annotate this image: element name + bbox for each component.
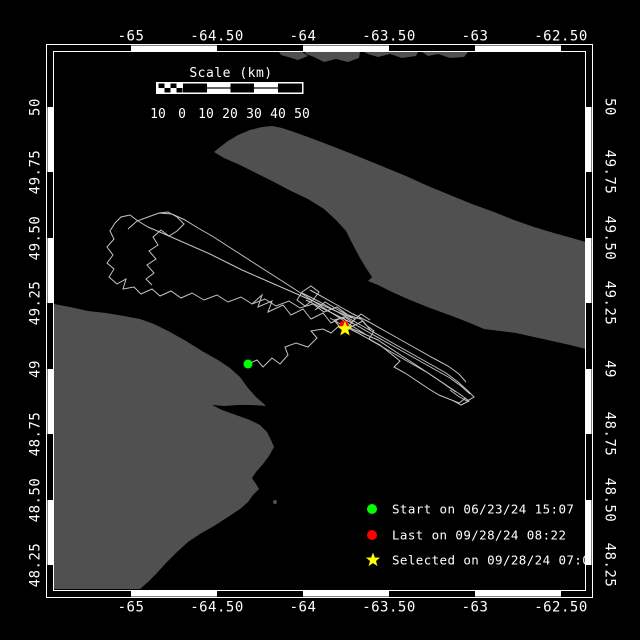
- lat-tick-label-right: 49.50: [602, 216, 618, 261]
- lat-tick-label-left: 49.50: [28, 216, 44, 261]
- frame-band-right: [586, 46, 592, 108]
- lon-tick-label-bottom: -65: [118, 600, 145, 616]
- legend-item-selected: Selected on 09/28/24 07:07: [366, 553, 598, 568]
- lat-tick-label-left: 49.25: [28, 281, 44, 326]
- map-canvas: Scale (km)1001020304050Start on 06/23/24…: [0, 0, 640, 640]
- frame-band-top: [217, 46, 303, 52]
- lat-tick-label-left: 49.75: [28, 150, 44, 195]
- scale-stripe: [207, 87, 231, 88]
- lat-tick-label-right: 48.25: [602, 543, 618, 588]
- frame-band-right: [586, 172, 592, 238]
- lon-tick-label-top: -64: [290, 29, 317, 45]
- lon-tick-label-bottom: -64.50: [190, 600, 244, 616]
- frame-band-top: [131, 46, 217, 52]
- frame-band-bottom: [303, 591, 389, 597]
- lat-tick-label-left: 48.25: [28, 543, 44, 588]
- lat-tick-label-left: 48.50: [28, 478, 44, 523]
- scale-checker-cell: [165, 88, 171, 93]
- frame-band-left: [48, 303, 54, 369]
- frame-band-right: [586, 369, 592, 434]
- scale-label: 0: [178, 107, 186, 122]
- legend-label-last: Last on 09/28/24 08:22: [392, 528, 566, 543]
- frame-band-bottom: [131, 591, 217, 597]
- scale-label: 30: [246, 107, 262, 122]
- lon-tick-label-bottom: -64: [290, 600, 317, 616]
- frame-band-top: [475, 46, 561, 52]
- frame-band-right: [586, 107, 592, 172]
- frame-band-left: [48, 172, 54, 238]
- lon-tick-label-top: -64.50: [190, 29, 244, 45]
- frame-band-left: [48, 369, 54, 434]
- frame-band-right: [586, 565, 592, 597]
- start-marker: [244, 360, 253, 369]
- lon-tick-label-top: -63: [462, 29, 489, 45]
- scale-black-segment: [231, 84, 255, 93]
- legend-item-last: Last on 09/28/24 08:22: [367, 528, 566, 543]
- lat-tick-label-right: 50: [602, 98, 618, 116]
- frame-band-right: [586, 303, 592, 369]
- lon-tick-label-bottom: -63.50: [362, 600, 416, 616]
- map-interior: Scale (km)1001020304050Start on 06/23/24…: [54, 52, 599, 591]
- scale-label: 50: [294, 107, 310, 122]
- scale-checker-cell: [159, 84, 165, 89]
- lon-tick-label-bottom: -62.50: [534, 600, 588, 616]
- lat-tick-label-right: 49.25: [602, 281, 618, 326]
- scale-label: 10: [150, 107, 166, 122]
- frame-band-bottom: [475, 591, 561, 597]
- legend: Start on 06/23/24 15:07Last on 09/28/24 …: [366, 502, 598, 568]
- frame-band-bottom: [389, 591, 475, 597]
- lat-tick-label-right: 49.75: [602, 150, 618, 195]
- frame-band-top: [48, 46, 132, 52]
- lat-tick-label-right: 48.50: [602, 478, 618, 523]
- frame-band-right: [586, 434, 592, 500]
- frame-band-left: [48, 107, 54, 172]
- scale-bar-title: Scale (km): [189, 66, 272, 81]
- frame-band-left: [48, 434, 54, 500]
- legend-item-start: Start on 06/23/24 15:07: [367, 502, 574, 517]
- lat-tick-label-left: 48.75: [28, 412, 44, 457]
- scale-stripe: [254, 87, 278, 88]
- scale-checker-cell: [171, 84, 177, 89]
- lon-tick-label-top: -62.50: [534, 29, 588, 45]
- frame-band-right: [586, 238, 592, 303]
- frame-band-left: [48, 46, 54, 108]
- lon-tick-label-bottom: -63: [462, 600, 489, 616]
- legend-label-selected: Selected on 09/28/24 07:07: [392, 553, 598, 568]
- scale-black-segment: [278, 84, 302, 93]
- lon-tick-label-top: -63.50: [362, 29, 416, 45]
- last-legend-icon: [367, 530, 377, 540]
- lat-tick-label-left: 50: [28, 98, 44, 116]
- frame-band-top: [389, 46, 475, 52]
- frame-band-right: [586, 500, 592, 565]
- frame-band-bottom: [48, 591, 132, 597]
- scale-black-segment: [183, 84, 207, 93]
- frame-band-top: [303, 46, 389, 52]
- scale-label: 40: [270, 107, 286, 122]
- lat-tick-label-right: 49: [602, 360, 618, 378]
- lat-tick-label-left: 49: [28, 360, 44, 378]
- map-screenshot: Scale (km)1001020304050Start on 06/23/24…: [0, 0, 640, 640]
- small-islet: [273, 500, 277, 504]
- frame-band-bottom: [217, 591, 303, 597]
- lat-tick-label-right: 48.75: [602, 412, 618, 457]
- frame-band-left: [48, 500, 54, 565]
- legend-label-start: Start on 06/23/24 15:07: [392, 502, 574, 517]
- lon-tick-label-top: -65: [118, 29, 145, 45]
- frame-band-left: [48, 238, 54, 303]
- scale-label: 20: [222, 107, 238, 122]
- scale-label: 10: [198, 107, 214, 122]
- frame-band-left: [48, 565, 54, 597]
- scale-checker-cell: [177, 88, 183, 93]
- start-legend-icon: [367, 504, 377, 514]
